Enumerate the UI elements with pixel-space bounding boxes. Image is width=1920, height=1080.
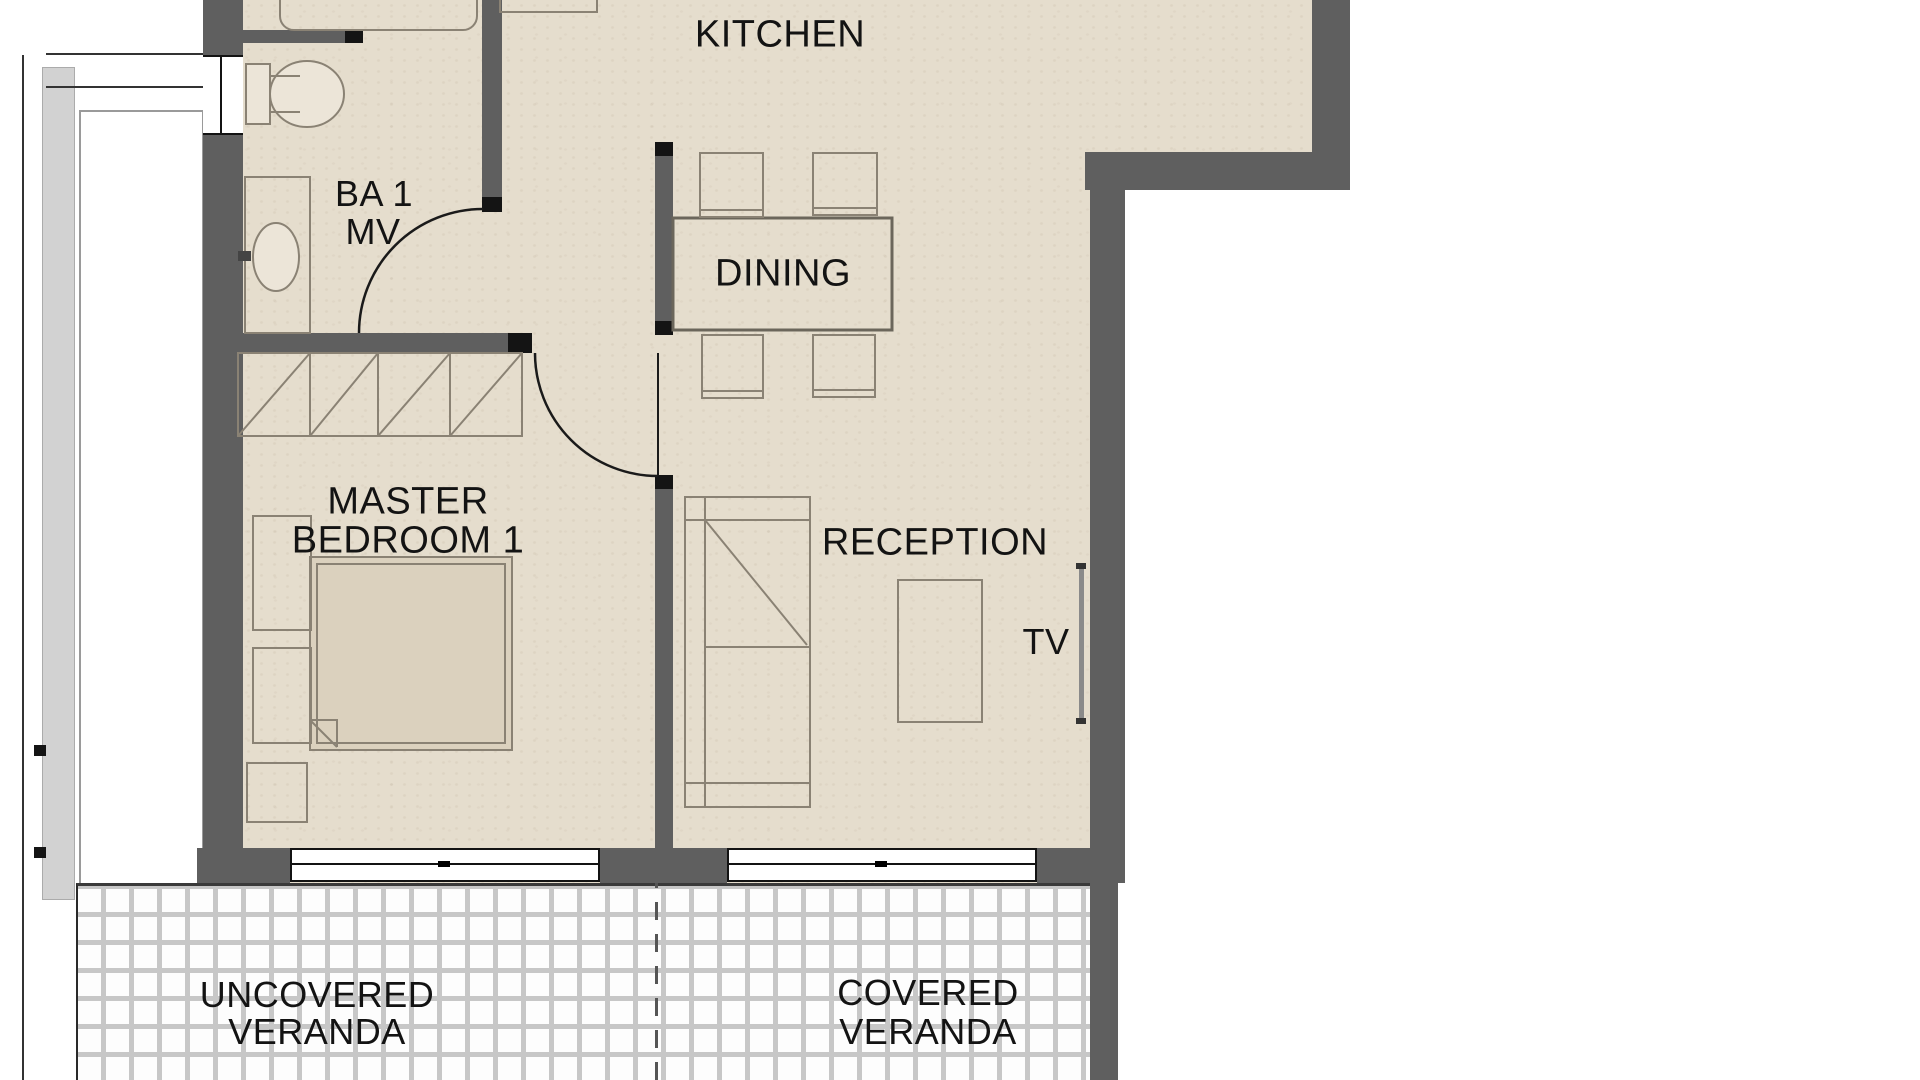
- room-label-bedroom-line2: BEDROOM 1: [292, 520, 525, 563]
- room-label-tv: TV: [1022, 621, 1069, 663]
- bedroom-dresser: [247, 763, 307, 822]
- room-label-dining: DINING: [715, 253, 851, 296]
- bathroom-sink: [238, 177, 310, 333]
- room-label-reception: RECEPTION: [822, 522, 1048, 565]
- bathtub: [280, 0, 477, 30]
- room-label-covered-veranda-line2: VERANDA: [839, 1011, 1017, 1053]
- room-label-bedroom-line1: MASTER: [327, 481, 488, 524]
- sofa: [685, 497, 810, 807]
- bedroom-door-arc: [535, 353, 658, 476]
- room-label-uncovered-veranda-line1: UNCOVERED: [200, 974, 435, 1016]
- toilet: [246, 61, 344, 127]
- room-label-bath-line2: MV: [346, 211, 401, 253]
- room-label-uncovered-veranda-line2: VERANDA: [228, 1011, 406, 1053]
- closet: [238, 353, 522, 436]
- room-label-bath-line1: BA 1: [335, 173, 413, 215]
- tv-stand: [898, 580, 982, 722]
- kitchen-counter: [500, 0, 597, 12]
- tv-unit: [1076, 563, 1086, 724]
- room-label-covered-veranda-line1: COVERED: [837, 972, 1019, 1014]
- nightstand-lower: [253, 648, 311, 743]
- room-label-kitchen: KITCHEN: [695, 14, 865, 57]
- floor-plan: KITCHEN BA 1 MV DINING MASTER BEDROOM 1 …: [0, 0, 1920, 1080]
- bed: [310, 557, 512, 750]
